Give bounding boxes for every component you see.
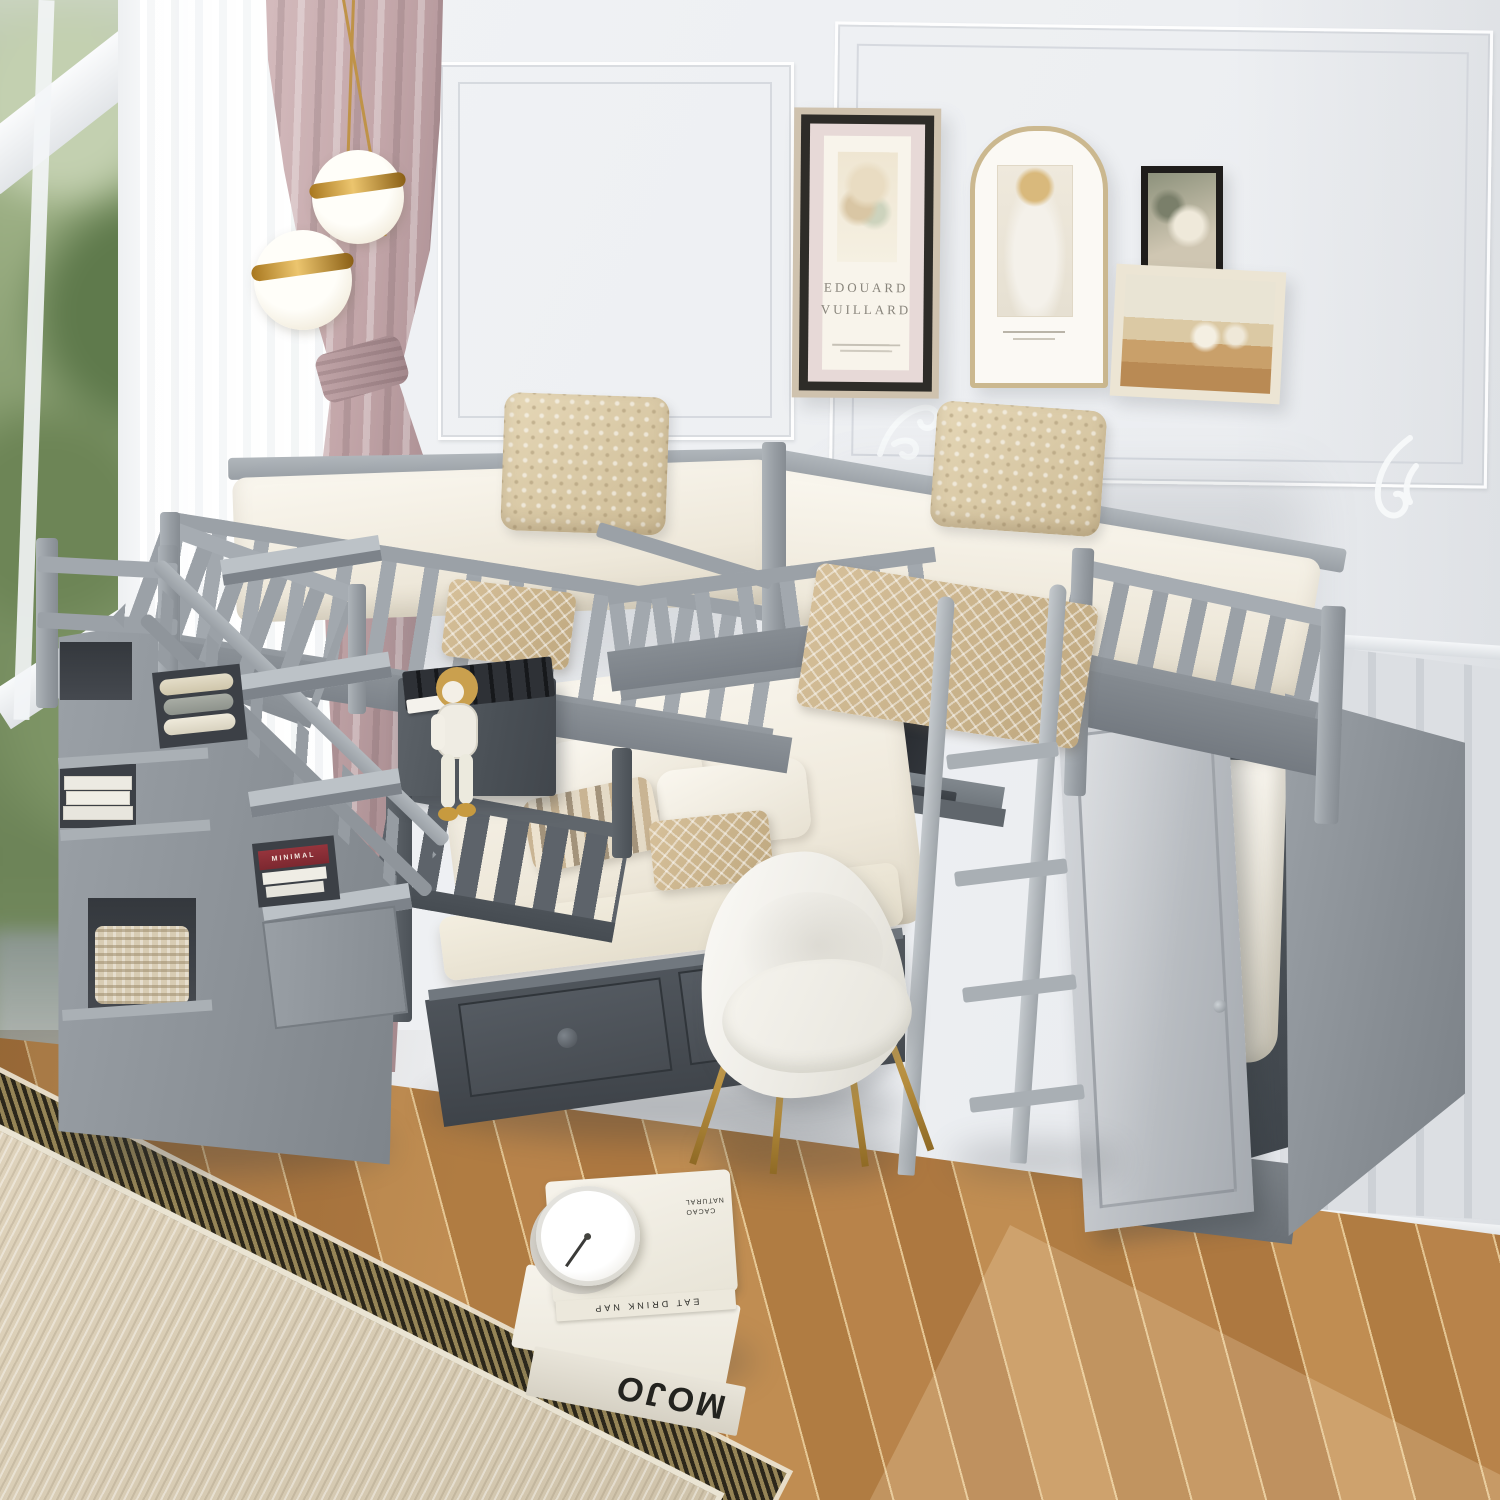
pendant-lamp-globe xyxy=(254,230,352,330)
frame-landscape xyxy=(1110,264,1287,405)
frame-arch-art xyxy=(997,165,1073,317)
book-cover-small-text: CACAO NATURAL xyxy=(684,1196,724,1216)
book-cover-word: NATURAL xyxy=(684,1196,724,1206)
frame-poster-art xyxy=(837,152,898,263)
ladder-rung xyxy=(962,974,1077,1003)
rolled-towel xyxy=(163,713,236,736)
astronaut-figurine xyxy=(415,662,500,830)
white-book xyxy=(63,806,133,820)
frame-landscape-art xyxy=(1120,274,1276,394)
stair-cubby-redbook: MINIMAL xyxy=(252,835,340,907)
book-cover-word: CACAO xyxy=(685,1206,725,1216)
frame-poster: EDOUARD VUILLARD xyxy=(792,107,942,398)
stair-cubby-books xyxy=(60,764,136,828)
ladder-rung xyxy=(954,858,1068,887)
arch-caption-line xyxy=(1003,331,1065,333)
bunk-headboard-post xyxy=(348,584,366,714)
white-book xyxy=(66,791,130,805)
frame-small-black xyxy=(1141,166,1223,276)
clock-hand xyxy=(565,1235,589,1267)
ladder-floor-shadow xyxy=(950,1140,1120,1180)
loft-pillow xyxy=(929,400,1107,538)
chair-floor-shadow xyxy=(705,1132,905,1180)
bunk-blanket xyxy=(440,578,577,671)
stair-cubby-towels xyxy=(152,664,247,749)
white-book xyxy=(64,776,132,790)
wall-panel-left-inner xyxy=(458,82,772,418)
frame-poster-title: EDOUARD VUILLARD xyxy=(792,279,939,318)
stair-cubby-empty xyxy=(60,642,132,700)
rolled-towel xyxy=(163,693,234,716)
stair-cubby-basket xyxy=(88,898,196,1010)
bedroom-scene: EDOUARD VUILLARD xyxy=(0,0,1500,1500)
poster-title-line2: VUILLARD xyxy=(792,301,939,318)
door-panel-groove xyxy=(1075,717,1237,1208)
frame-arch xyxy=(970,126,1108,388)
wicker-basket xyxy=(95,926,189,1004)
plaster-ornament-icon xyxy=(1358,432,1428,532)
frame-small-art xyxy=(1148,173,1216,269)
drawer-knob xyxy=(556,1027,578,1049)
arch-caption-line xyxy=(1013,338,1055,340)
full-bed-footboard-post xyxy=(612,748,632,858)
bunk-pillow xyxy=(500,392,670,536)
clock-center-dot xyxy=(584,1233,592,1241)
poster-title-line1: EDOUARD xyxy=(793,279,940,296)
stair-bottom-drawer xyxy=(262,906,408,1030)
